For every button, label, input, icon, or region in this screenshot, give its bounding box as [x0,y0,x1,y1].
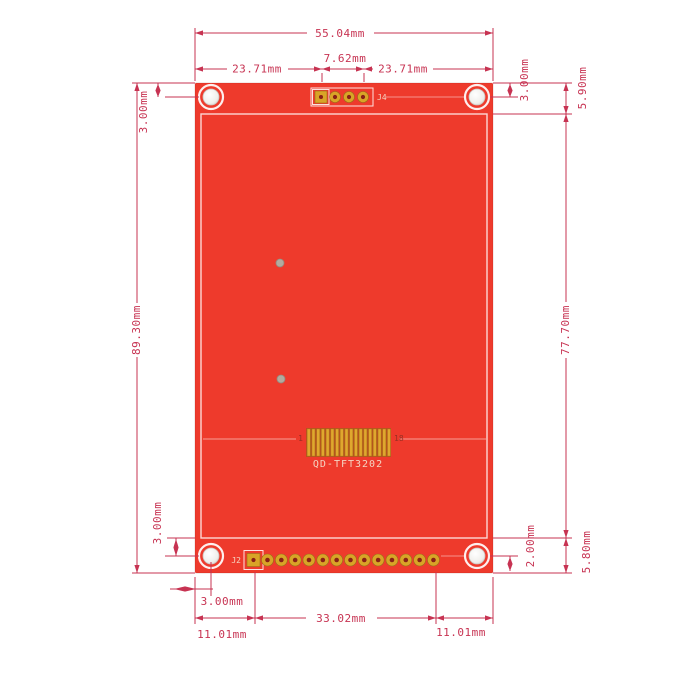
arrowhead [485,30,493,35]
dim-bottom-right-span: 11.01mm [436,626,486,639]
dim-top-left-span: 23.71mm [232,63,282,76]
mounting-hole [469,548,485,564]
pcb-dimension-drawing: J4 J2 1 18 QD-TFT3202 55.04mm 23.71mm 7.… [0,0,675,675]
j2-pad-hole [279,558,284,563]
arrowhead [173,539,178,548]
fpc-first-pin-label: 1 [298,434,303,443]
fpc-finger [326,429,329,456]
arrowhead [173,548,178,557]
j4-label: J4 [377,93,387,102]
arrowhead [247,615,255,620]
via-hole [277,375,285,383]
arrowhead [507,557,512,564]
pcb-substrate [195,83,493,573]
j2-pad-hole [390,558,395,563]
fpc-finger [331,429,334,456]
arrowhead [155,91,160,98]
j2-label: J2 [231,556,241,565]
arrowhead [255,615,263,620]
arrowhead [134,83,139,91]
arrowhead [563,530,568,538]
arrowhead [563,106,568,114]
j2-pad-hole [293,558,298,563]
arrowhead [134,565,139,573]
j2-pad-hole [251,558,255,562]
fpc-finger [321,429,324,456]
arrowhead [485,66,493,71]
dim-bottom-margin-right: 5.80mm [580,531,593,574]
board-model-label: QD-TFT3202 [313,459,383,470]
j2-pad-hole [431,558,436,563]
j2-pad-hole [334,558,339,563]
arrowhead [185,586,196,591]
fpc-finger [383,429,386,456]
j2-pad-hole [362,558,367,563]
arrowhead [436,615,444,620]
fpc-finger [373,429,376,456]
j2-pad-hole [307,558,312,563]
fpc-finger [388,429,391,456]
arrowhead [364,66,372,71]
fpc-finger [359,429,362,456]
mounting-hole [203,548,219,564]
dim-display-height: 77.70mm [559,305,572,355]
dim-overall-width: 55.04mm [315,27,365,40]
dim-bottom-left-span: 11.01mm [197,628,247,641]
fpc-finger [307,429,310,456]
mounting-hole [203,89,219,105]
dim-hole-offset-bottom-left: 3.00mm [151,502,164,545]
j4-pad-hole [347,95,351,99]
fpc-finger [312,429,315,456]
fpc-finger [355,429,358,456]
dim-top-center-span: 7.62mm [324,52,367,65]
dim-top-margin-right: 5.90mm [576,67,589,110]
arrowhead [195,615,203,620]
arrowhead [155,84,160,91]
j2-pad-hole [348,558,353,563]
via-hole [276,259,284,267]
fpc-finger [378,429,381,456]
pcb-board: J4 J2 1 18 QD-TFT3202 [195,83,493,573]
dim-bottom-gap-right: 2.00mm [524,525,537,568]
fpc-finger [317,429,320,456]
dim-overall-height: 89.30mm [130,305,143,355]
j2-pad-hole [376,558,381,563]
j2-pad-hole [417,558,422,563]
j4-pad-hole [361,95,365,99]
fpc-finger [369,429,372,456]
arrowhead [174,586,185,591]
fpc-footprint [306,428,391,457]
dim-top-right-span: 23.71mm [378,63,428,76]
j4-pad-hole [319,95,323,99]
fpc-finger [345,429,348,456]
fpc-finger [364,429,367,456]
arrowhead [322,66,330,71]
arrowhead [507,84,512,91]
j2-pad-hole [265,558,270,563]
arrowhead [563,565,568,573]
arrowhead [563,83,568,91]
dim-hole-offset-bottom-h: 3.00mm [201,595,244,608]
j2-pad-hole [404,558,409,563]
j4-pad-hole [333,95,337,99]
j2-pad-hole [321,558,326,563]
arrowhead [563,538,568,546]
arrowhead [195,30,203,35]
arrowhead [314,66,322,71]
dim-hole-offset-top-right: 3.00mm [518,59,531,102]
dim-hole-offset-top-left: 3.00mm [137,91,150,134]
dim-bottom-center-span: 33.02mm [316,612,366,625]
fpc-finger [340,429,343,456]
arrowhead [507,91,512,98]
drawing-canvas: J4 J2 1 18 QD-TFT3202 55.04mm 23.71mm 7.… [0,0,675,675]
fpc-finger [336,429,339,456]
arrowhead [195,66,203,71]
arrowhead [485,615,493,620]
arrowhead [507,564,512,571]
arrowhead [563,114,568,122]
fpc-last-pin-label: 18 [394,434,404,443]
arrowhead [356,66,364,71]
mounting-hole [469,89,485,105]
arrowhead [428,615,436,620]
fpc-finger [350,429,353,456]
